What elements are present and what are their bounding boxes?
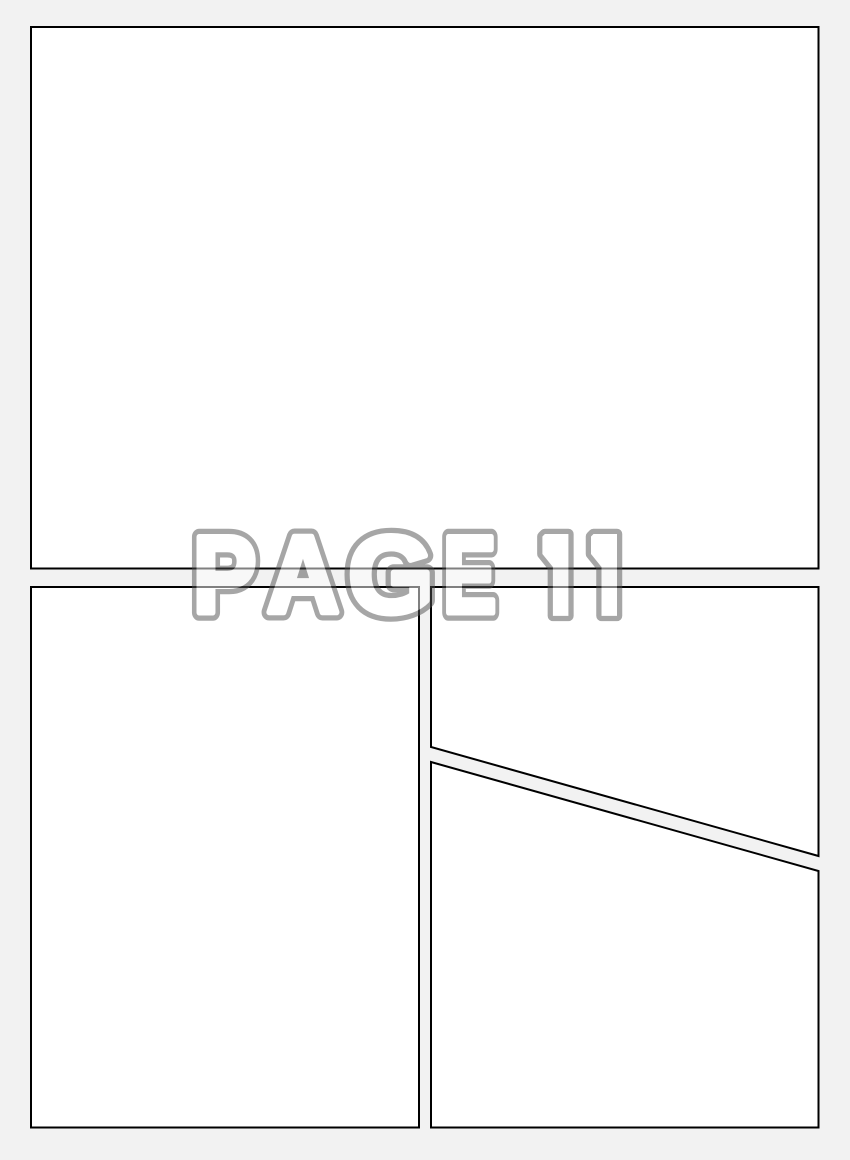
svg-text:G: G [348, 515, 433, 637]
svg-text:A: A [267, 515, 340, 637]
svg-text:E: E [443, 515, 496, 637]
svg-text:P: P [193, 515, 257, 637]
